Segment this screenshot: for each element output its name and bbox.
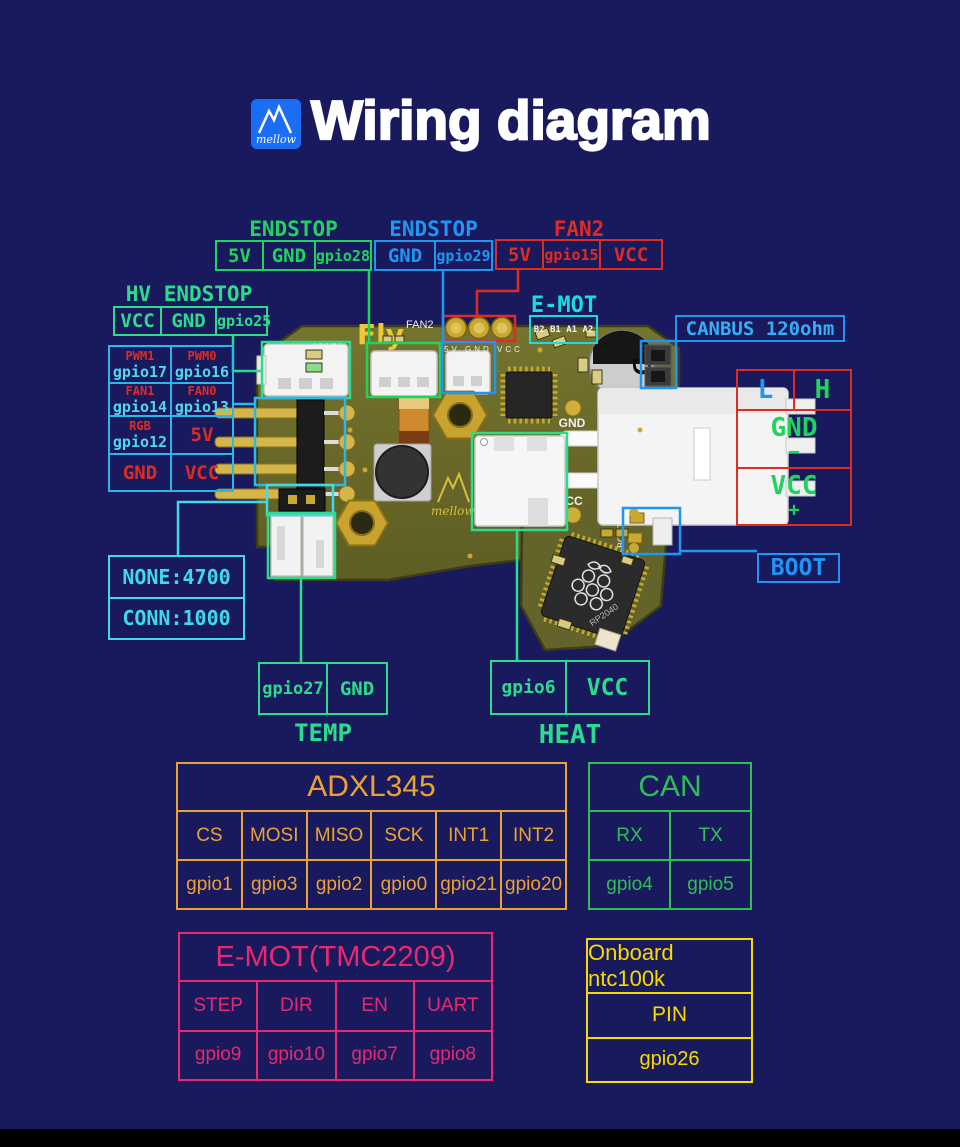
pin-cell: gpio15 [542,241,599,268]
table-header-cell: INT2 [500,812,565,859]
table-value-cell: gpio1 [178,861,241,908]
table-value-cell: gpio8 [413,1032,491,1080]
pin-cell: gpio6 [492,662,565,713]
temp-box: gpio27 GND [258,662,388,715]
table-header-cell: TX [669,812,750,859]
table-value-cell: gpio9 [180,1032,256,1080]
ntc-value: gpio26 [588,1039,751,1082]
ntc-pin-header: PIN [588,994,751,1039]
io-cell: PWM1 gpio17 [110,347,170,382]
io-cell: FAN1 gpio14 [110,384,170,415]
endstop-mid-box: GND gpio29 [374,240,493,271]
can-low-cell: L [738,371,795,409]
table-header-cell: SCK [370,812,435,859]
table-header-cell: MOSI [241,812,306,859]
inductor [374,444,431,501]
canbus-label: CANBUS 120ohm [675,315,845,342]
fan2-box: 5V gpio15 VCC [495,239,663,270]
ceramic-capacitor [399,397,429,445]
pin-cell: GND [262,242,314,269]
pin-cell: GND [326,664,386,713]
hv-endstop-title: HV ENDSTOP [110,282,268,306]
can-title: CAN [590,764,750,812]
can-vcc-cell: VCC+ [738,467,850,525]
silk-fan2-pins: 5V GND VCC [444,345,523,354]
table-header-cell: DIR [256,982,334,1030]
emot-pins-box: B2 B1 A1 A2 [529,315,598,344]
pin-cell: 5V [497,241,542,268]
pin-cell: GND [160,308,215,334]
table-value-cell: gpio7 [335,1032,413,1080]
table-value-cell: gpio10 [256,1032,334,1080]
can-table: CAN RX TX gpio4 gpio5 [588,762,752,910]
pullup-values-box: NONE:4700 CONN:1000 [108,555,245,640]
pin-cell: VCC [115,308,160,334]
emot-driver-table: E-MOT(TMC2209) STEP DIR EN UART gpio9 gp… [178,932,493,1081]
io-cell: VCC [170,455,232,490]
bottom-black-bar [0,1129,960,1147]
fan2-pads [446,318,513,339]
emot-driver-title: E-MOT(TMC2209) [180,934,491,982]
table-header-cell: UART [413,982,491,1030]
pullup-row: CONN:1000 [110,599,243,639]
silk-gnd: GND [559,416,586,430]
fan-connector-3pin [371,351,437,396]
boot-label: BOOT [757,553,840,583]
hv-endstop-box: VCC GND gpio25 [113,306,268,336]
wiring-diagram-page: D GND VCC [0,0,960,1147]
table-header-cell: MISO [306,812,371,859]
mellow-logo: mellow [251,99,301,149]
pullup-row: NONE:4700 [110,557,243,599]
table-value-cell: gpio0 [370,861,435,908]
table-header-cell: INT1 [435,812,500,859]
qfn-chip [503,369,555,421]
jumper-header [279,489,325,511]
adxl345-table: ADXL345 CS MOSI MISO SCK INT1 INT2 gpio1… [176,762,567,910]
table-value-cell: gpio5 [669,861,750,908]
io-cell: RGB gpio12 [110,417,170,453]
endstop-left-box: 5V GND gpio28 [215,240,372,271]
temp-title: TEMP [258,719,388,747]
io-cell: PWM0 gpio16 [170,347,232,382]
endstop-connector-2pin [446,351,490,394]
endstop-mid-title: ENDSTOP [374,217,493,241]
pin-cell: gpio25 [215,308,271,334]
pin-cell: GND [376,242,434,269]
can-gnd-cell: GND− [738,411,850,467]
pin-cell: gpio29 [434,242,491,269]
table-header-cell: RX [590,812,669,859]
silk-fly: Fly [357,318,404,351]
pin-cell: VCC [565,662,648,713]
table-value-cell: gpio20 [500,861,565,908]
can-high-cell: H [795,371,850,409]
svg-text:mellow: mellow [431,504,475,518]
silk-fan2: FAN2 [406,319,434,331]
svg-text:mellow: mellow [256,133,297,146]
table-value-cell: gpio2 [306,861,371,908]
line-fan2 [477,270,518,316]
io-cell: FAN0 gpio13 [170,384,232,415]
io-pin-table: PWM1 gpio17 PWM0 gpio16 FAN1 gpio14 FAN0… [108,345,234,492]
table-value-cell: gpio3 [241,861,306,908]
table-value-cell: gpio4 [590,861,669,908]
can-connector [645,345,671,386]
heat-box: gpio6 VCC [490,660,650,715]
io-cell: GND [110,455,170,490]
heat-title: HEAT [490,720,650,750]
pin-cell: gpio27 [260,664,326,713]
table-header-cell: CS [178,812,241,859]
ntc-table: Onboard ntc100k PIN gpio26 [586,938,753,1083]
pin-cell: gpio28 [314,242,370,269]
line-pullup [178,502,267,556]
fan2-title: FAN2 [495,217,663,241]
pin-cell: VCC [599,241,661,268]
table-header-cell: STEP [180,982,256,1030]
table-header-cell: EN [335,982,413,1030]
endstop-left-title: ENDSTOP [215,217,372,241]
adxl345-title: ADXL345 [178,764,565,812]
pin-cell: 5V [217,242,262,269]
ntc-title: Onboard ntc100k [588,940,751,994]
can-lh-table: L H GND− VCC+ [736,369,852,526]
io-cell: 5V [170,417,232,453]
table-value-cell: gpio21 [435,861,500,908]
heat-connector [475,436,565,526]
page-title: Wiring diagram [311,88,711,152]
